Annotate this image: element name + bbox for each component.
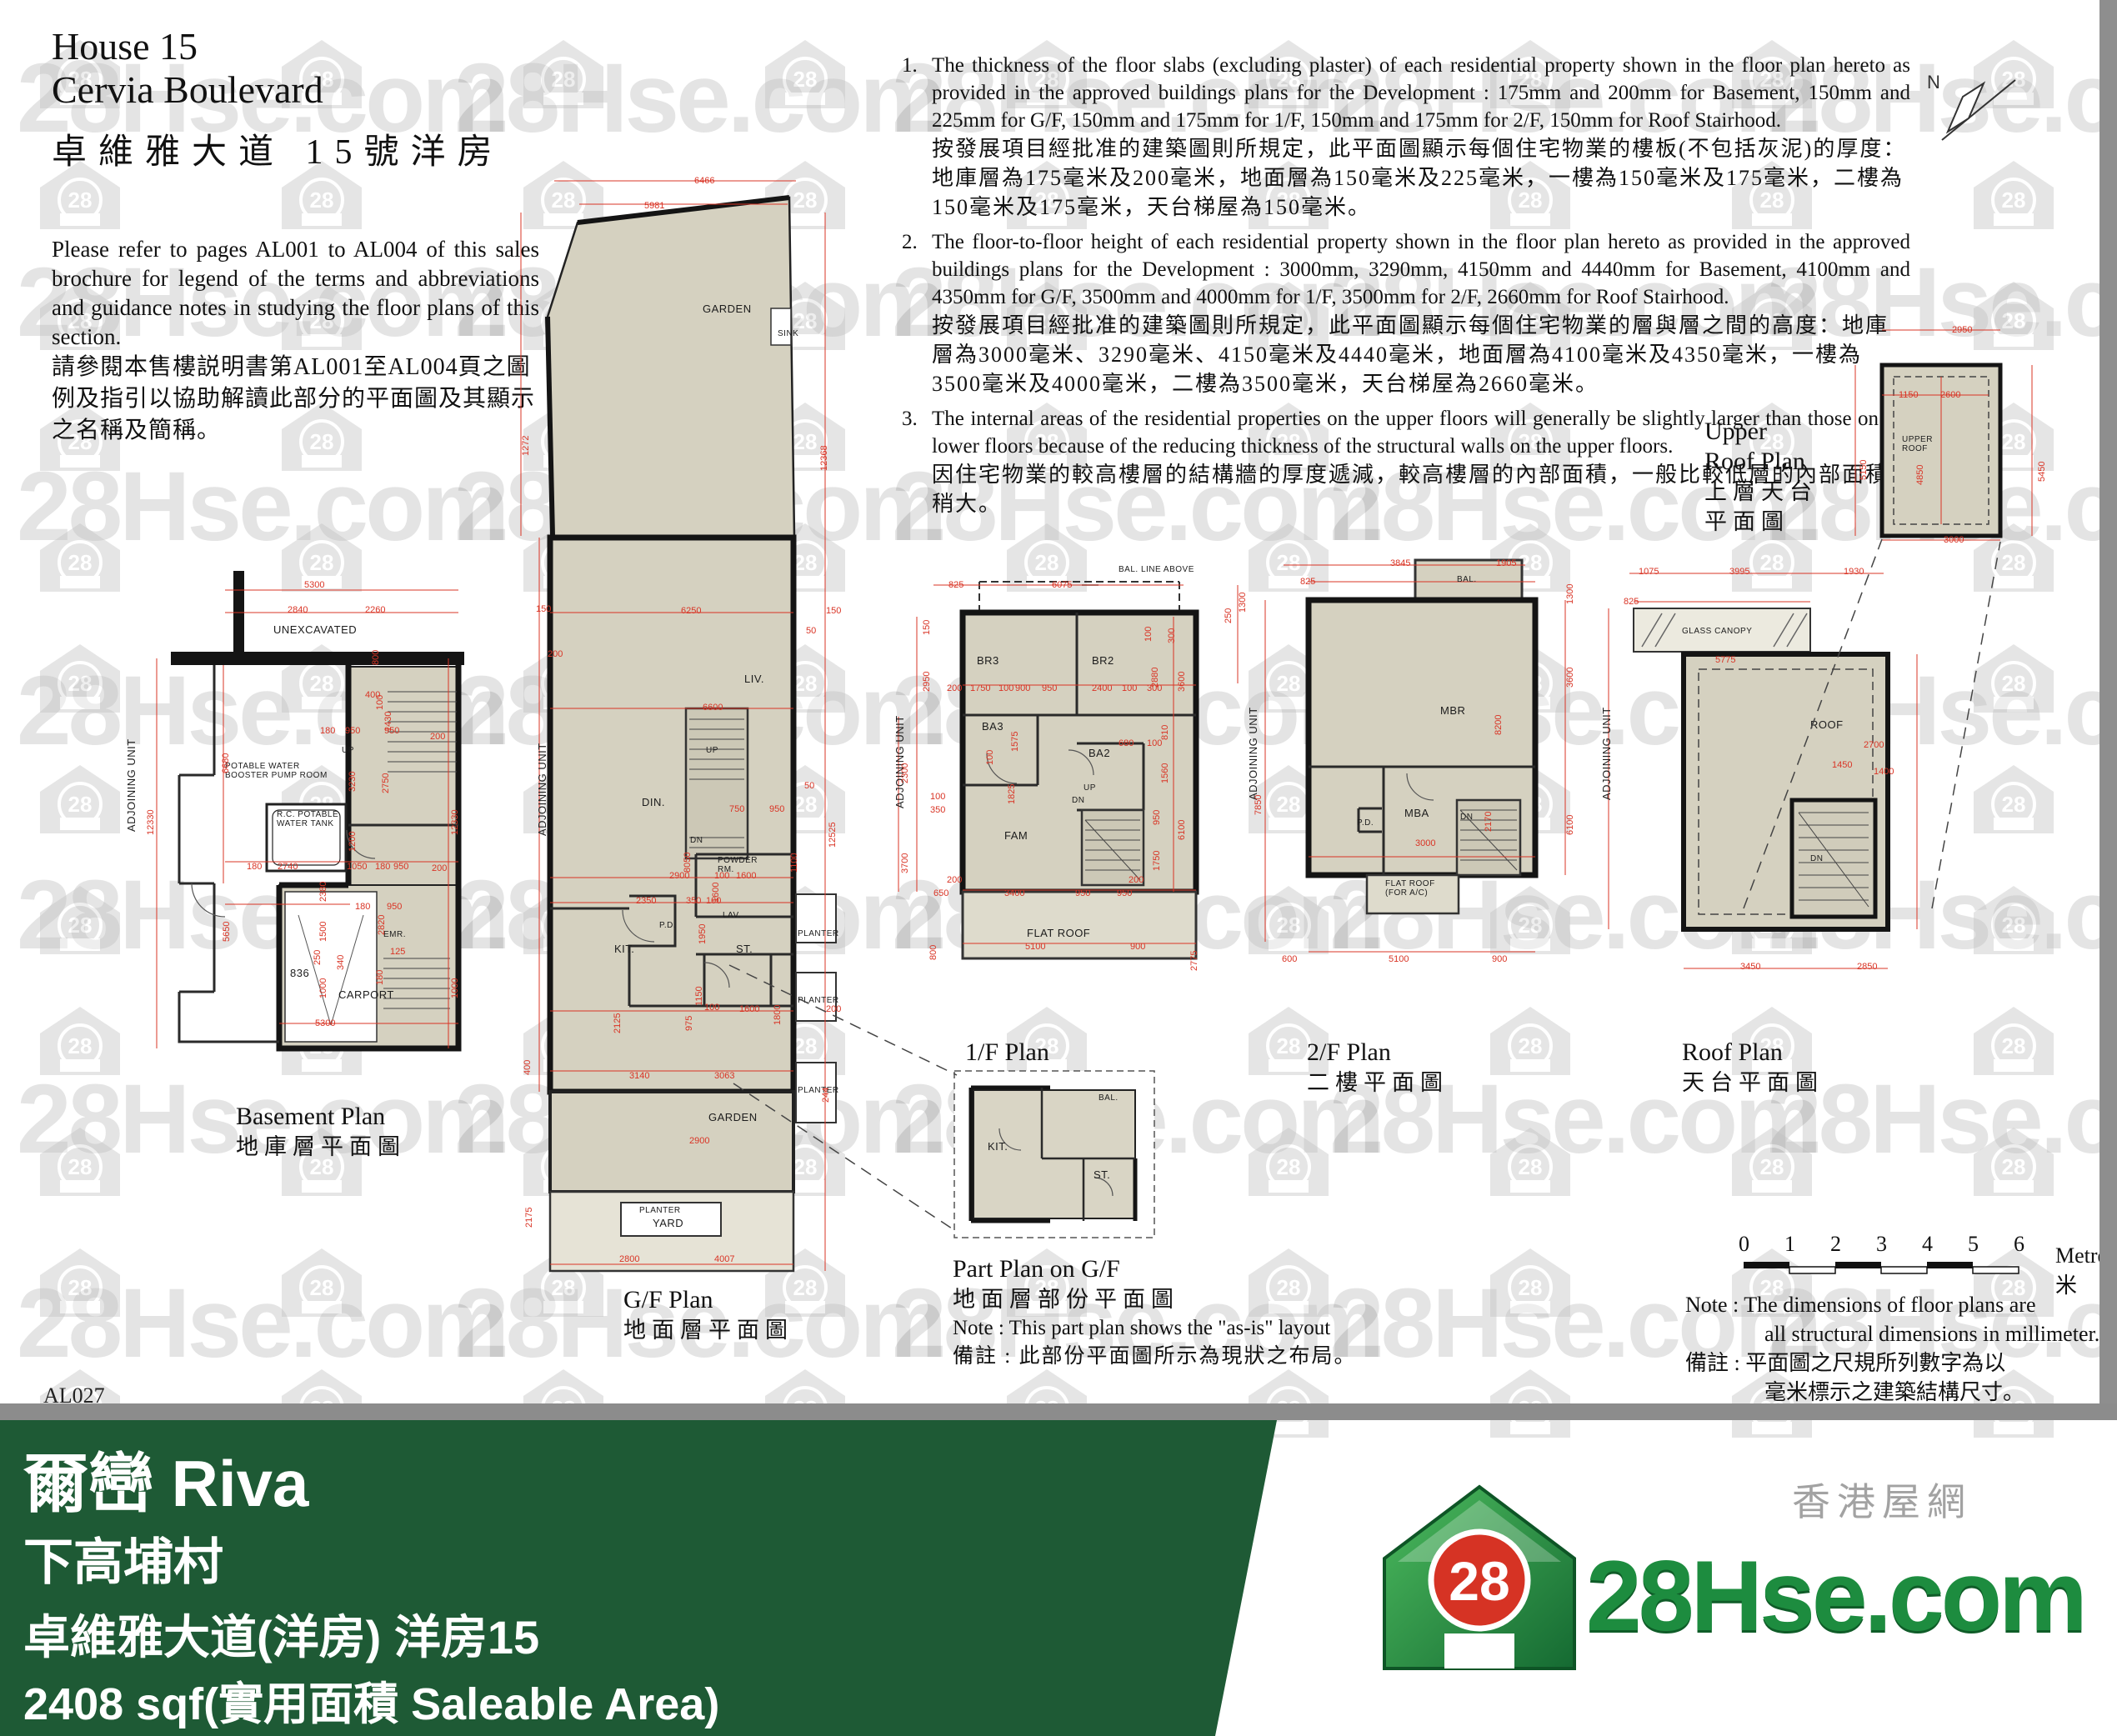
- room-label: ADJOINING UNIT: [1600, 707, 1613, 800]
- dimension-label: 250: [313, 950, 323, 965]
- note-number: 2.: [902, 228, 932, 398]
- dimension-label: 3845: [1390, 558, 1410, 568]
- 28hse-house-icon: 28: [1379, 1482, 1579, 1673]
- dimension-label: 6100: [1177, 820, 1187, 840]
- room-label: UPPER ROOF: [1902, 435, 1933, 453]
- watermark-text: 28Hse.com: [17, 1267, 506, 1380]
- dimension-label: 900: [1492, 954, 1507, 964]
- dimension-label: 1100: [789, 853, 799, 873]
- dimension-label: 1950: [698, 924, 708, 944]
- dimension-label: 7850: [1254, 795, 1264, 815]
- logo-tagline: 香港屋網: [1792, 1472, 1972, 1527]
- dimension-label: 300: [1147, 683, 1162, 693]
- gf-title-zh: 地面層平面圖: [623, 1315, 793, 1345]
- basement-title-zh: 地庫層平面圖: [236, 1132, 406, 1162]
- dimension-label: 3400: [1004, 888, 1024, 898]
- room-label: ADJOINING UNIT: [893, 715, 906, 808]
- dimension-label: 100: [985, 750, 995, 765]
- room-label: KIT.: [614, 943, 634, 955]
- dimension-label: 950: [1117, 888, 1132, 898]
- scale-tick-label: 3: [1876, 1232, 1887, 1257]
- dimension-label: 6466: [694, 176, 714, 186]
- room-label: YARD: [653, 1217, 683, 1229]
- room-label: ADJOINING UNIT: [536, 743, 548, 836]
- room-label: ROOF: [1810, 718, 1844, 731]
- page-header: House 15 Cervia Boulevard 卓維雅大道 15號洋房: [52, 25, 504, 174]
- dimension-label: 2700: [1864, 740, 1884, 750]
- second-floor-drawing: [1234, 525, 1584, 1008]
- part-title-zh: 地面層部份平面圖: [953, 1284, 1386, 1314]
- watermark-house-icon: 28: [523, 40, 603, 110]
- dimension-label: 12525: [828, 822, 838, 848]
- dimension-label: 6680: [221, 753, 231, 773]
- roof-title-en: Roof Plan: [1682, 1038, 1824, 1068]
- dimension-label: 825: [1300, 577, 1315, 587]
- dimension-label: 50: [804, 781, 814, 791]
- dimension-label: 3140: [629, 1071, 649, 1081]
- room-label: BAL. LINE ABOVE: [1119, 565, 1194, 574]
- dimension-label: 950: [384, 726, 399, 736]
- room-label: LIV.: [744, 673, 764, 685]
- watermark-house-icon: 28: [1732, 1128, 1812, 1198]
- room-label: PLANTER: [798, 1086, 839, 1095]
- room-label: BA2: [1089, 747, 1110, 759]
- room-label: EMR.: [383, 930, 406, 939]
- roof-drawing: [1584, 525, 1959, 1008]
- dimension-label: 650: [933, 888, 948, 898]
- note-number: 1.: [902, 52, 932, 222]
- dimension-label: 100: [930, 792, 945, 802]
- dimension-label: 950: [1152, 810, 1162, 825]
- dimension-label: 200: [826, 1004, 841, 1014]
- dimension-label: 1150: [1899, 390, 1919, 400]
- second-floor-plan: BAL.ADJOINING UNITMBRMBAP.D.DNFLAT ROOF …: [1234, 525, 1584, 1008]
- room-label: P.D.: [659, 921, 676, 930]
- north-arrow-icon: [1942, 80, 2015, 140]
- scale-tick-label: 5: [1968, 1232, 1979, 1257]
- dimension-label: 200: [430, 732, 445, 742]
- watermark-text: 28Hse.com: [454, 42, 943, 155]
- room-label: ADJOINING UNIT: [125, 738, 138, 832]
- room-label: P.D.: [1357, 818, 1374, 828]
- dimension-label: 125: [390, 947, 405, 957]
- dimension-label: 1200: [348, 832, 358, 852]
- dimension-label: 3000: [1944, 535, 1964, 545]
- dimension-label: 950: [393, 862, 408, 872]
- room-label: UP: [706, 746, 718, 755]
- dimension-label: 2775: [1189, 951, 1199, 971]
- part-title-en: Part Plan on G/F: [953, 1254, 1386, 1284]
- dimension-label: 3000: [1415, 838, 1435, 848]
- room-label: ST.: [736, 943, 753, 955]
- dimension-label: 1000: [450, 978, 460, 998]
- 28hse-logo[interactable]: 28 28Hse.com 香港屋網: [1371, 1465, 2088, 1707]
- dimension-label: 100: [706, 896, 721, 906]
- dimension-label: 1825: [1007, 784, 1017, 804]
- dimension-label: 900: [1130, 942, 1145, 952]
- upper-roof-plan-title: Upper Roof Plan 上層天台 平面圖: [1704, 417, 1818, 537]
- note-number: 3.: [902, 405, 932, 518]
- watermark-house-icon: 28: [1974, 1007, 2054, 1077]
- dimension-label: 244: [821, 1088, 831, 1103]
- dimension-label: 2170: [1484, 812, 1494, 832]
- dimension-label: 200: [432, 863, 447, 873]
- part-note-zh: 備註 : 此部份平面圖所示為現狀之布局。: [953, 1343, 1386, 1371]
- dimension-label: 180: [375, 970, 385, 985]
- watermark-house-icon: 28: [1974, 161, 2054, 231]
- scale-bar: 0123456Metres 米: [1732, 1232, 2115, 1290]
- dimension-label: 2950: [922, 672, 932, 692]
- dimension-label: 12368: [819, 445, 829, 471]
- dimension-label: 2350: [636, 896, 656, 906]
- dimension-label: 2175: [524, 1208, 534, 1228]
- f2-title-zh: 二樓平面圖: [1307, 1068, 1449, 1098]
- dimension-label: 2400: [1092, 683, 1112, 693]
- gf-plan: GARDENSINKADJOINING UNITLIV.DIN.UPDNPOWD…: [496, 163, 846, 1288]
- dimension-label: 200: [1129, 875, 1144, 885]
- room-label: 836: [290, 967, 309, 979]
- room-label: UP: [342, 746, 354, 755]
- room-label: PLANTER: [798, 929, 839, 938]
- dimension-label: 100: [1147, 738, 1162, 748]
- part-plan-gf: KIT.ST.BAL.: [942, 1058, 1167, 1250]
- dimension-label: 350: [930, 805, 945, 815]
- dimension-label: 825: [1624, 597, 1639, 607]
- first-floor-plan: BAL. LINE ABOVEADJOINING UNITBR3BR2BA3BA…: [883, 533, 1250, 1017]
- intro-chinese: 請參閱本售樓説明書第AL001至AL004頁之圖例及指引以協助解讀此部分的平面圖…: [52, 352, 539, 447]
- dimension-label: 4850: [1915, 465, 1925, 485]
- dimension-label: 1450: [1832, 760, 1852, 770]
- dimension-label: 340: [336, 955, 346, 970]
- dimension-label: 400: [523, 1060, 533, 1075]
- watermark-house-icon: 28: [40, 1128, 120, 1198]
- dimension-label: 5650: [222, 922, 232, 942]
- dimension-label: 1600: [736, 871, 756, 881]
- upper-roof-drawing: [1825, 300, 2109, 567]
- dimension-label: 6075: [1052, 580, 1072, 590]
- dimension-label: 750: [729, 804, 744, 814]
- dimension-label: 950: [1075, 888, 1090, 898]
- dimension-label: 1750: [970, 683, 990, 693]
- dimension-label: 100: [375, 695, 385, 710]
- dimension-label: 100: [1144, 627, 1154, 642]
- second-floor-plan-title: 2/F Plan 二樓平面圖: [1307, 1038, 1449, 1098]
- dimension-label: 5100: [1389, 954, 1409, 964]
- dimension-label: 5100: [1025, 942, 1045, 952]
- room-label: BR3: [977, 654, 999, 667]
- room-label: GLASS CANOPY: [1682, 627, 1752, 636]
- dimension-label: 1560: [1160, 763, 1170, 783]
- house-title-line2: Cervia Boulevard: [52, 68, 504, 112]
- room-label: DIN.: [642, 796, 665, 808]
- dimension-note-zh-line2: 毫米標示之建築結構尺寸。: [1685, 1378, 2102, 1407]
- house-title-chinese: 卓維雅大道 15號洋房: [52, 123, 504, 174]
- dimension-label: 350: [686, 896, 701, 906]
- watermark-house-icon: 28: [1974, 886, 2054, 956]
- dimension-label: 150: [922, 620, 932, 635]
- dimension-label: 1400: [1874, 767, 1894, 777]
- dimension-label: 1750: [1152, 851, 1162, 871]
- dimension-label: 2125: [613, 1013, 623, 1033]
- room-label: FLAT ROOF (FOR A/C): [1385, 879, 1435, 898]
- dimension-label: 50: [806, 626, 816, 636]
- dimension-label: 1800: [773, 1005, 783, 1025]
- dimension-label: 950: [387, 902, 402, 912]
- dimension-label: 100: [714, 871, 729, 881]
- room-label: BA3: [982, 720, 1003, 733]
- room-label: KIT.: [988, 1140, 1008, 1153]
- dimension-label: 950: [769, 804, 784, 814]
- dimension-label: 900: [1015, 683, 1030, 693]
- room-label: DN: [1072, 796, 1084, 805]
- dimension-label: 5150: [1859, 460, 1869, 480]
- dimension-label: 2300: [900, 763, 910, 783]
- dimension-label: 975: [684, 1016, 694, 1031]
- watermark-house-icon: 28: [1974, 644, 2054, 714]
- dimension-label: 180: [375, 862, 390, 872]
- dimension-label: 600: [1282, 954, 1297, 964]
- roof-title-zh: 天台平面圖: [1682, 1068, 1824, 1098]
- watermark-house-icon: 28: [282, 1248, 362, 1318]
- dimension-label: 1075: [1639, 567, 1659, 577]
- room-label: ST.: [1094, 1168, 1110, 1181]
- basement-plan-title: Basement Plan 地庫層平面圖: [236, 1102, 406, 1162]
- dimension-label: 5450: [2037, 462, 2047, 482]
- dimension-label: 6250: [681, 606, 701, 616]
- scale-tick-label: 1: [1784, 1232, 1795, 1257]
- note-english: The floor-to-floor height of each reside…: [932, 228, 1910, 311]
- note-english: The thickness of the floor slabs (exclud…: [932, 52, 1910, 134]
- room-label: R.C. POTABLE WATER TANK: [277, 810, 338, 828]
- part-plan-drawing: [942, 1058, 1167, 1250]
- dimension-label: 2260: [365, 605, 385, 615]
- scale-tick-label: 2: [1830, 1232, 1841, 1257]
- dimension-label: 825: [948, 580, 963, 590]
- room-label: MBA: [1404, 807, 1429, 819]
- room-label: SINK: [778, 329, 798, 338]
- upper-title-line3: 上層天台: [1704, 477, 1818, 507]
- room-label: GARDEN: [708, 1111, 758, 1123]
- part-note-en: Note : This part plan shows the "as-is" …: [953, 1314, 1386, 1343]
- dimension-label: 2380: [318, 882, 328, 902]
- dimension-label: 250: [1224, 608, 1234, 623]
- note-chinese: 按發展項目經批准的建築圖則所規定，此平面圖顯示每個住宅物業的樓板(不包括灰泥)的…: [932, 134, 1910, 222]
- roof-plan-title: Roof Plan 天台平面圖: [1682, 1038, 1824, 1098]
- dimension-label: 150: [536, 604, 551, 614]
- intro-paragraph: Please refer to pages AL001 to AL004 of …: [52, 235, 539, 447]
- dimension-label: 5981: [644, 201, 664, 211]
- note-chinese: 按發展項目經批准的建築圖則所規定，此平面圖顯示每個住宅物業的層與層之間的高度：地…: [932, 311, 1910, 398]
- dimension-label: 180: [247, 862, 262, 872]
- room-label: ADJOINING UNIT: [1247, 707, 1259, 800]
- upper-title-line4: 平面圖: [1704, 507, 1818, 537]
- dimension-note: Note : The dimensions of floor plans are…: [1685, 1290, 2102, 1407]
- saleable-area: 2408 sqf(實用面積 Saleable Area): [23, 1667, 719, 1733]
- part-plan-title: Part Plan on G/F 地面層部份平面圖 Note : This pa…: [953, 1254, 1386, 1371]
- watermark-house-icon: 28: [1490, 1007, 1570, 1077]
- dimension-label: 3600: [1177, 672, 1187, 692]
- watermark-house-icon: 28: [1974, 40, 2054, 110]
- dimension-label: 1930: [1844, 567, 1864, 577]
- dimension-label: 2950: [1952, 325, 1972, 335]
- room-label: UNEXCAVATED: [273, 623, 357, 636]
- dimension-label: 12330: [450, 809, 460, 835]
- dimension-label: 5775: [1715, 655, 1735, 665]
- dimension-label: 800: [371, 650, 381, 665]
- dimension-label: 2740: [278, 862, 298, 872]
- estate-address: 卓維雅大道(洋房) 洋房15: [23, 1600, 539, 1668]
- dimension-label: 5300: [315, 1018, 335, 1028]
- dimension-label: 3995: [1729, 567, 1749, 577]
- room-label: UP: [1084, 783, 1096, 793]
- dimension-label: 1000: [318, 978, 328, 998]
- intro-english: Please refer to pages AL001 to AL004 of …: [52, 235, 539, 352]
- dimension-label: 1500: [318, 922, 328, 942]
- dimension-label: 300: [1167, 628, 1177, 643]
- brochure-page: 28Hse.com28Hse.com28Hse.com28Hse.com28Hs…: [0, 0, 2117, 1736]
- room-label: BAL.: [1457, 575, 1477, 584]
- room-label: DN: [1460, 813, 1473, 822]
- dimension-label: 1150: [694, 986, 704, 1006]
- watermark-house-icon: 28: [1490, 1248, 1570, 1318]
- scale-tick-label: 4: [1922, 1232, 1933, 1257]
- room-label: PLANTER: [639, 1206, 681, 1215]
- dimension-label: 2600: [1940, 390, 1960, 400]
- dimension-label: 1050: [347, 862, 367, 872]
- room-label: DN: [690, 836, 703, 845]
- watermark-house-icon: 28: [40, 1248, 120, 1318]
- dimension-label: 100: [704, 1003, 719, 1013]
- dimension-label: 3230: [348, 772, 358, 792]
- dimension-label: 2820: [377, 915, 387, 935]
- dimension-label: 200: [548, 649, 563, 659]
- dimension-label: 12330: [146, 809, 156, 835]
- dimension-label: 3600: [1565, 668, 1575, 688]
- note-item-1: 1. The thickness of the floor slabs (exc…: [902, 52, 1910, 222]
- dimension-label: 5300: [304, 580, 324, 590]
- dimension-label: 2900: [689, 1136, 709, 1146]
- dimension-label: 680: [1119, 738, 1134, 748]
- dimension-label: 8050: [683, 853, 693, 873]
- dimension-label: 1272: [521, 436, 531, 456]
- dimension-label: 3700: [900, 853, 910, 873]
- divider-band: [0, 1403, 2117, 1420]
- dimension-label: 800: [928, 945, 938, 960]
- dimension-note-zh-line1: 備註 : 平面圖之尺規所列數字為以: [1685, 1348, 2102, 1378]
- dimension-label: 180: [320, 726, 335, 736]
- watermark-house-icon: 28: [765, 40, 845, 110]
- dimension-label: 150: [826, 606, 841, 616]
- first-floor-drawing: [883, 533, 1250, 1017]
- dimension-label: 950: [1042, 683, 1057, 693]
- dimension-label: 8200: [1494, 715, 1504, 735]
- watermark-house-icon: 28: [1490, 1128, 1570, 1198]
- scale-tick-label: 0: [1739, 1232, 1749, 1257]
- dimension-label: 2800: [619, 1254, 639, 1264]
- roof-plan: GLASS CANOPYADJOINING UNITROOFDN10753995…: [1584, 525, 1959, 1008]
- dimension-label: 100: [1122, 683, 1137, 693]
- room-label: FLAT ROOF: [1027, 927, 1090, 939]
- basement-plan: UNEXCAVATEDADJOINING UNITPOTABLE WATER B…: [100, 525, 475, 1058]
- room-label: CARPORT: [338, 988, 394, 1001]
- upper-title-line2: Roof Plan: [1704, 447, 1818, 477]
- logo-wordmark: 28Hse.com: [1586, 1538, 2084, 1653]
- estate-district: 下高埔村: [23, 1522, 223, 1594]
- gf-title-en: G/F Plan: [623, 1285, 793, 1315]
- page-edge-strip: [2099, 0, 2117, 1403]
- dimension-label: 6100: [1565, 815, 1575, 835]
- dimension-label: 1600: [739, 1004, 759, 1014]
- watermark-house-icon: 28: [1249, 1128, 1329, 1198]
- watermark-house-icon: 28: [1974, 765, 2054, 835]
- watermark-house-icon: 28: [1974, 1128, 2054, 1198]
- house-title-line1: House 15: [52, 25, 504, 68]
- upper-title-line1: Upper: [1704, 417, 1818, 447]
- room-label: LAV.: [723, 911, 741, 920]
- dimension-label: 200: [947, 683, 962, 693]
- basement-title-en: Basement Plan: [236, 1102, 406, 1132]
- dimension-label: 200: [947, 875, 962, 885]
- dimension-label: 3063: [714, 1071, 734, 1081]
- dimension-label: 1300: [1565, 584, 1575, 604]
- dimension-label: 3450: [1740, 962, 1760, 972]
- dimension-label: 1905: [1496, 558, 1516, 568]
- room-label: BAL.: [1099, 1093, 1119, 1103]
- logo-badge-number: 28: [1449, 1550, 1509, 1612]
- dimension-label: 180: [355, 902, 370, 912]
- dimension-label: 2840: [288, 605, 308, 615]
- dimension-label: 2750: [381, 773, 391, 793]
- room-label: MBR: [1440, 704, 1465, 717]
- dimension-label: 950: [345, 726, 360, 736]
- dimension-label: 2850: [1857, 962, 1877, 972]
- dimension-label: 6600: [703, 703, 723, 713]
- dimension-label: 1575: [1010, 732, 1020, 752]
- dimension-label: 2900: [669, 871, 689, 881]
- room-label: POTABLE WATER BOOSTER PUMP ROOM: [225, 762, 328, 780]
- estate-name: 爾巒 Riva: [23, 1432, 308, 1525]
- f2-title-en: 2/F Plan: [1307, 1038, 1449, 1068]
- room-label: DN: [1810, 854, 1823, 863]
- note-item-2: 2. The floor-to-floor height of each res…: [902, 228, 1910, 398]
- dimension-note-en-line2: all structural dimensions in millimeter.: [1685, 1319, 2102, 1348]
- upper-roof-plan: UPPER ROOF2950115026005450515048503000: [1825, 300, 2109, 567]
- dimension-label: 4007: [714, 1254, 734, 1264]
- gf-plan-title: G/F Plan 地面層平面圖: [623, 1285, 793, 1345]
- dimension-label: 100: [998, 683, 1013, 693]
- room-label: GARDEN: [703, 303, 752, 315]
- room-label: FAM: [1004, 829, 1028, 842]
- room-label: BR2: [1092, 654, 1114, 667]
- north-label: N: [1927, 72, 1940, 93]
- dimension-note-en-line1: Note : The dimensions of floor plans are: [1685, 1290, 2102, 1319]
- scale-tick-label: 6: [2014, 1232, 2024, 1257]
